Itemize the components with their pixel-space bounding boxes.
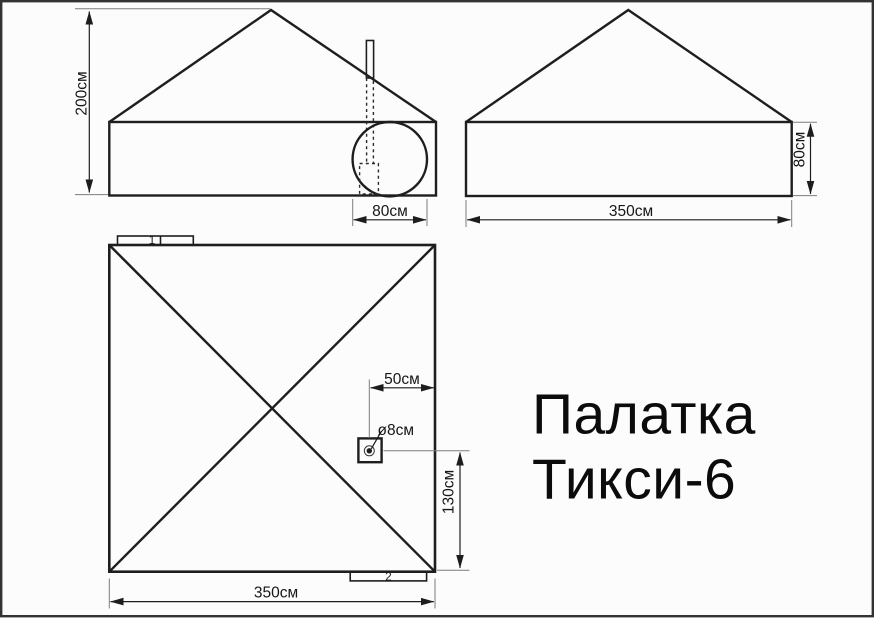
dim-label-side-wall-height: 80см bbox=[792, 132, 809, 168]
paper-background bbox=[0, 0, 875, 618]
dim-label-pipe-offset-x: 50см bbox=[384, 371, 420, 388]
drawing-title: Палатка Тикси-6 bbox=[532, 383, 756, 512]
title-line-2: Тикси-6 bbox=[532, 448, 736, 512]
dim-label-pipe-diameter: ø8см bbox=[378, 422, 415, 439]
entrance-marker-top-label: 1 bbox=[149, 235, 155, 247]
dim-label-plan-width: 350см bbox=[254, 585, 298, 602]
dim-label-front-height: 200см bbox=[74, 71, 91, 115]
dim-label-pipe-offset-y: 130см bbox=[441, 470, 458, 514]
dim-label-side-width: 350см bbox=[609, 203, 653, 220]
dim-label-front-window: 80см bbox=[372, 203, 408, 220]
entrance-marker-bottom-label: 2 bbox=[385, 572, 391, 584]
pipe-hole-center-dot bbox=[367, 448, 372, 453]
title-line-1: Палатка bbox=[532, 383, 756, 447]
tent-technical-drawing: 200см 80см 80см 350см 1 2 bbox=[0, 0, 875, 618]
tent-drawing-page: 200см 80см 80см 350см 1 2 bbox=[0, 0, 875, 618]
